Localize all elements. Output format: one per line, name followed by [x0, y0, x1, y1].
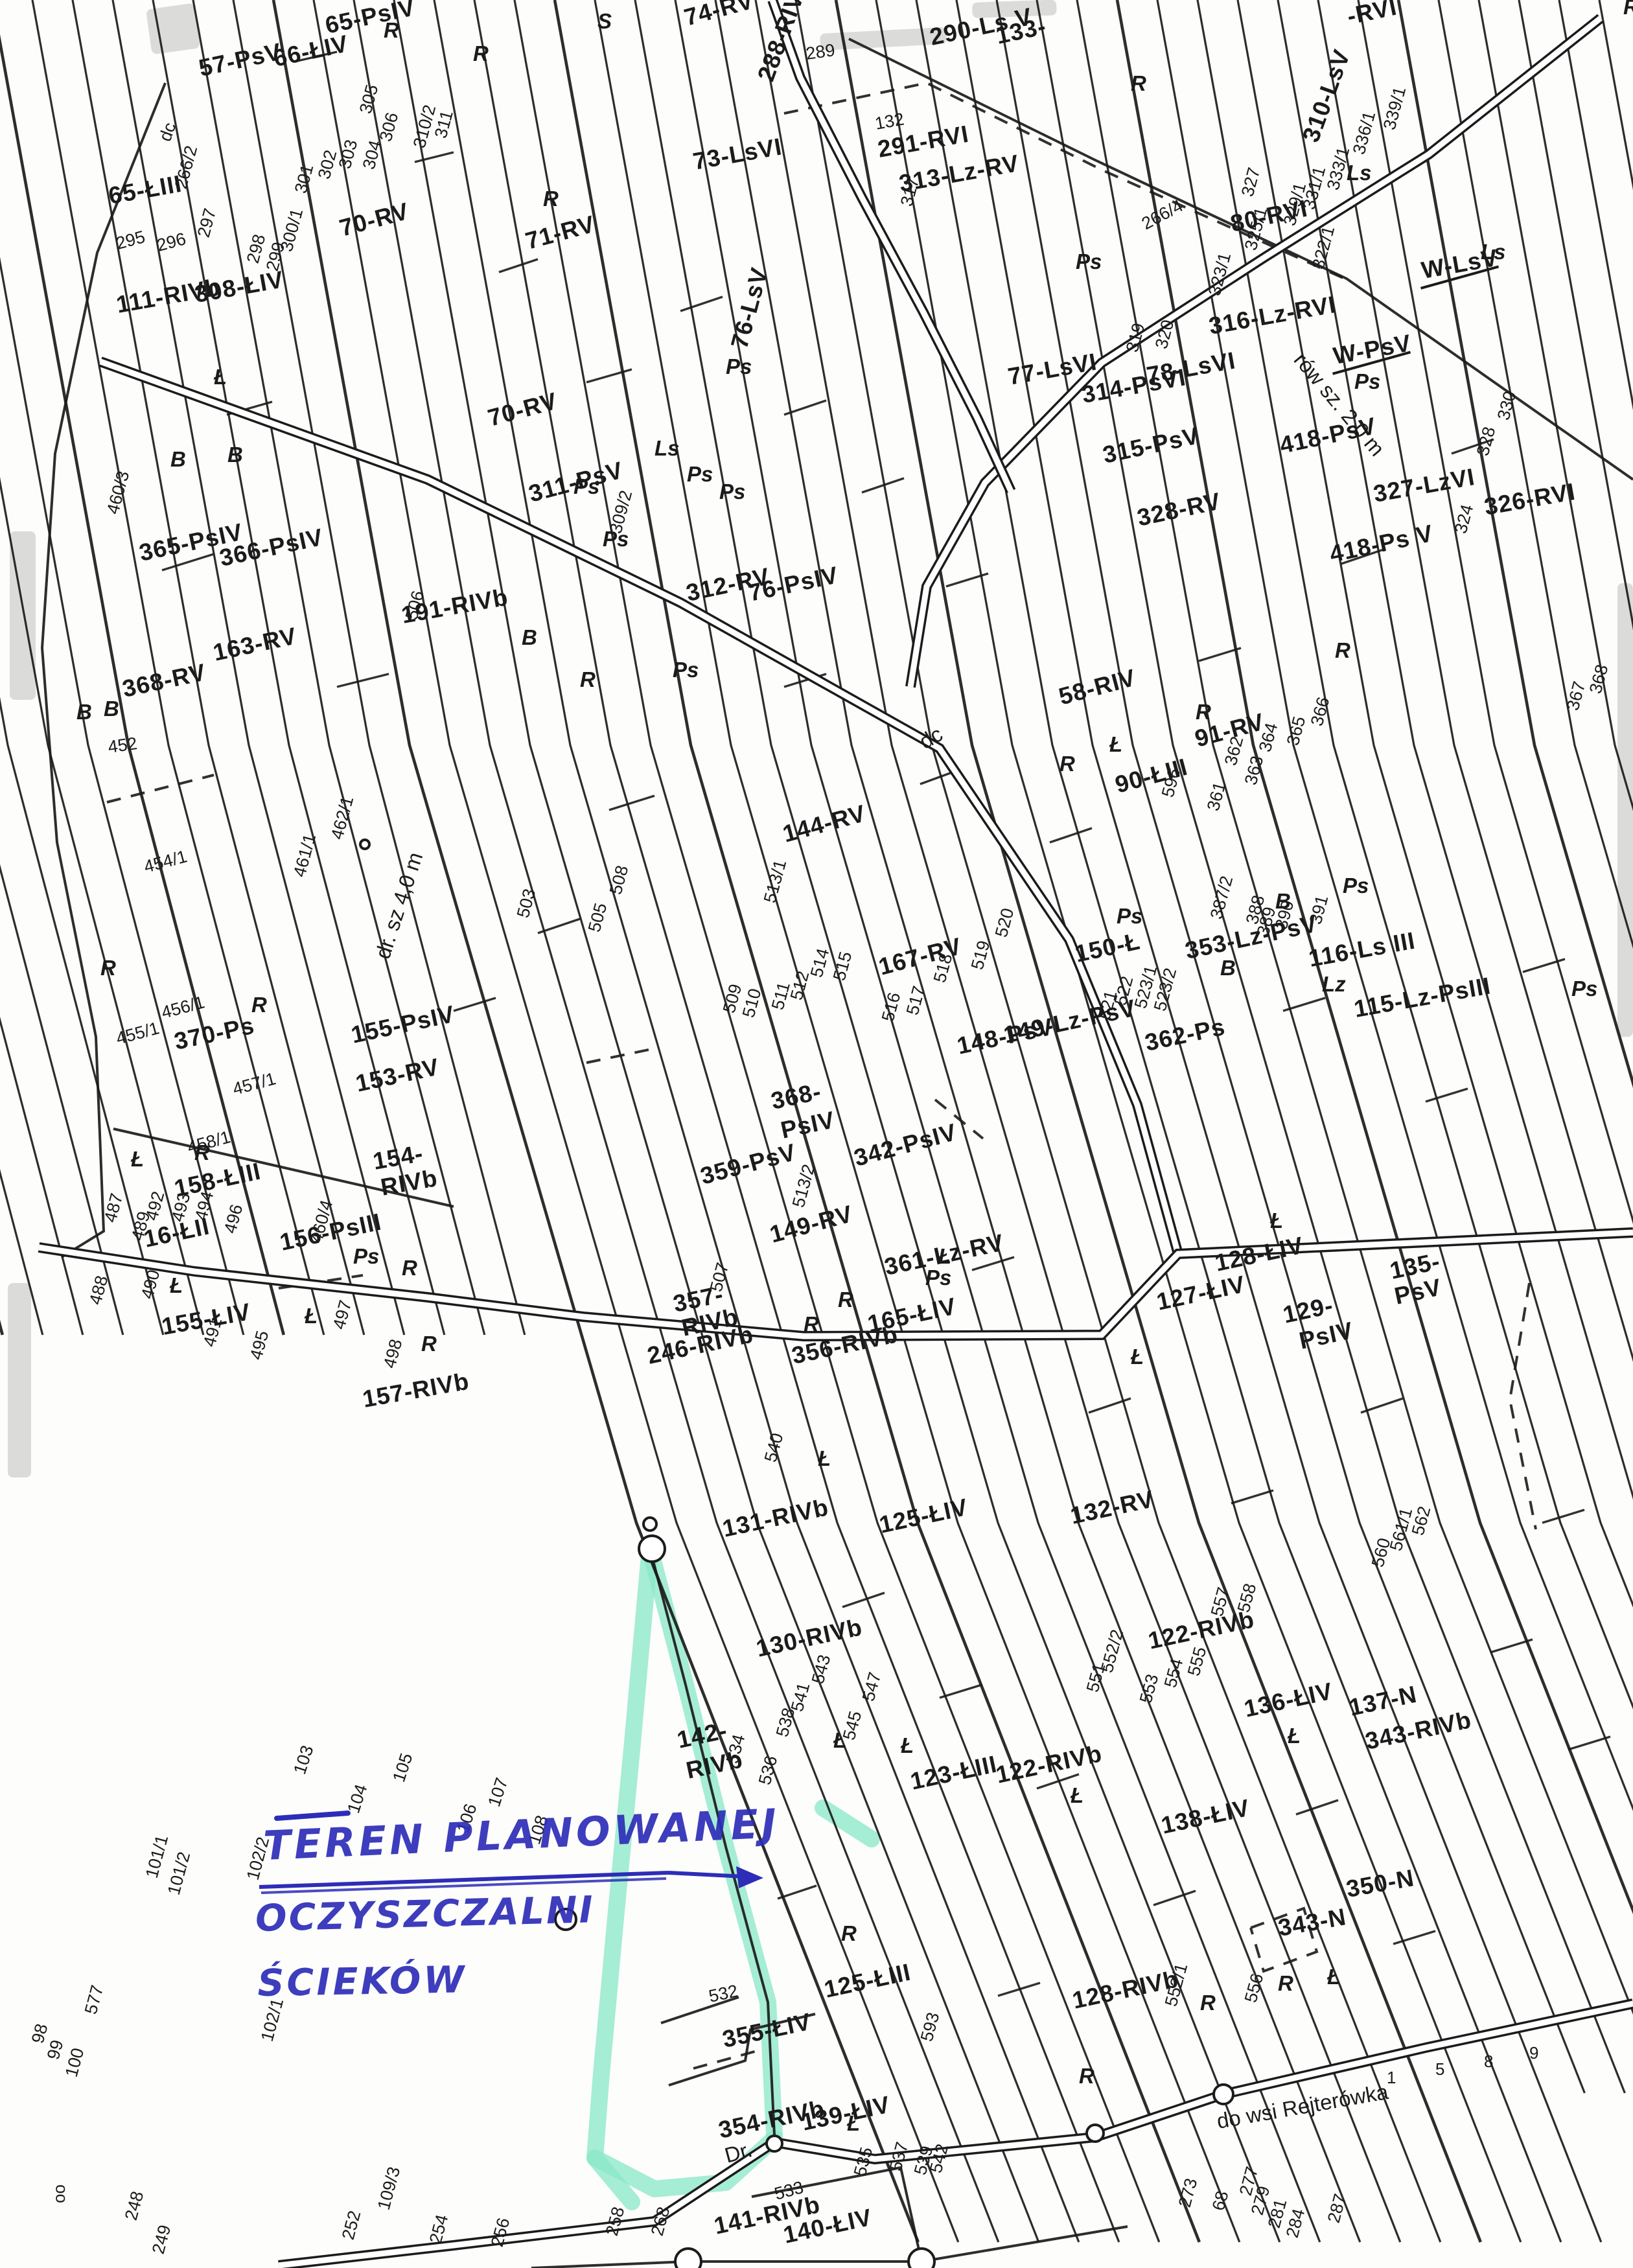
- land-use-letter: B: [76, 700, 92, 724]
- parcel-number: 540: [761, 1431, 787, 1464]
- land-use-letter: R: [421, 1332, 437, 1356]
- parcel-number: 324: [1451, 502, 1477, 535]
- parcel-number: 336/1: [1349, 110, 1379, 157]
- land-use-letter: Ł: [169, 1273, 183, 1297]
- parcel-number: 296: [155, 229, 188, 255]
- land-use-letter: B: [1220, 956, 1236, 980]
- land-use-letter: B: [104, 697, 119, 721]
- land-use-letter: Ł: [213, 365, 227, 389]
- soil-class-label: 128-ŁIV: [1212, 1232, 1306, 1277]
- land-use-letter: R: [838, 1288, 853, 1312]
- land-use-letter: B: [522, 625, 537, 649]
- land-use-letter: Lz: [1322, 972, 1346, 996]
- land-use-letter: B: [227, 443, 243, 467]
- parcel-number: 101/1: [142, 1833, 172, 1880]
- parcel-number: 513/1: [760, 858, 790, 905]
- survey-point: [639, 1536, 665, 1562]
- parcel-number: 490: [137, 1267, 164, 1301]
- parcel-number: 520: [991, 906, 1018, 939]
- soil-class-label: 57-PsV: [196, 38, 284, 82]
- parcel-number: 256: [487, 2216, 514, 2249]
- parcel-number: 248: [121, 2189, 148, 2222]
- soil-class-label: 288-RIVb: [752, 0, 814, 85]
- parcel-number: 457/1: [231, 1069, 278, 1098]
- soil-class-label: 122-RIVb: [1146, 1606, 1257, 1654]
- parcel-number: 552/2: [1097, 1628, 1127, 1675]
- land-use-letter: B: [170, 447, 186, 471]
- land-use-letter: R: [804, 1312, 819, 1336]
- parcel-number: 593: [917, 2010, 944, 2043]
- parcel-number: 101/2: [164, 1850, 194, 1897]
- soil-class-label: 153-RV: [353, 1054, 441, 1097]
- survey-point: [643, 1518, 656, 1531]
- parcel-number: 365: [1283, 714, 1310, 747]
- parcel-number: 266/4: [1139, 196, 1187, 233]
- parcel-number: 258: [602, 2204, 629, 2238]
- land-use-letter: Ps: [925, 1266, 951, 1290]
- soil-class-label: 343-N: [1276, 1903, 1348, 1941]
- parcel-number: 266/2: [171, 144, 201, 191]
- survey-point: [1214, 2085, 1233, 2104]
- soil-class-label: 163-RV: [211, 623, 299, 666]
- parcel-number: 105: [389, 1751, 416, 1785]
- parcel-number: 107: [484, 1776, 511, 1809]
- soil-class-label: 370-Ps: [172, 1012, 257, 1055]
- parcel-number: 254: [426, 2212, 452, 2245]
- land-use-letter: R: [194, 1140, 210, 1164]
- land-use-letter: Ł: [1287, 1724, 1301, 1748]
- edge-number: 1: [1387, 2068, 1396, 2087]
- land-use-letter: R: [1196, 700, 1211, 724]
- land-use-letter: Ps: [1076, 249, 1102, 273]
- parcel-number: 301: [291, 162, 318, 195]
- land-use-letter: R: [251, 993, 267, 1017]
- parcel-number: 249: [148, 2223, 175, 2256]
- soil-class-label: 316-Lz-RVI: [1207, 291, 1338, 340]
- survey-point: [767, 2136, 782, 2151]
- soil-class-label: 78-LsVI: [1144, 347, 1238, 388]
- parcel-number: 558: [1234, 1581, 1260, 1614]
- soil-class-label: 150-Ł: [1072, 928, 1142, 967]
- parcel-number: 543: [808, 1652, 835, 1685]
- scan-artifacts-layer: [8, 0, 1633, 1477]
- survey-point: [360, 840, 369, 849]
- soil-class-label: 142-: [675, 1717, 730, 1753]
- soil-class-label: 73-LsVI: [691, 133, 784, 174]
- parcel-number: 488: [86, 1273, 112, 1306]
- land-use-letter: S: [597, 9, 612, 33]
- land-use-letter: R: [580, 667, 596, 691]
- parcel-number: 305: [356, 82, 382, 115]
- land-use-letter: Ps: [726, 354, 752, 378]
- parcel-number: 319: [1122, 321, 1149, 354]
- parcel-number: 306: [376, 110, 402, 143]
- road-north-east-road: [910, 18, 1601, 687]
- soil-class-label: 58-RIV: [1056, 664, 1139, 710]
- parcel-number: 562: [1408, 1504, 1435, 1537]
- parcel-number: 495: [246, 1328, 273, 1361]
- parcel-number: 268: [647, 2204, 674, 2238]
- parcel-number: 103: [290, 1743, 317, 1777]
- parcel-number: 461/1: [290, 832, 319, 879]
- soil-class-label: 132-RV: [1068, 1486, 1156, 1529]
- parcel-number: 295: [114, 227, 147, 253]
- land-use-letter: R: [1335, 638, 1350, 662]
- parcel-number: 577: [81, 1983, 108, 2016]
- parcel-number: 273: [1175, 2176, 1201, 2209]
- parcel-number: 556: [1241, 1971, 1268, 2004]
- soil-class-label: 136-ŁIV: [1242, 1678, 1335, 1722]
- parcel-number: 508: [606, 863, 632, 896]
- parcel-number: 515: [829, 949, 856, 982]
- land-use-letter: R: [473, 41, 489, 65]
- soil-class-label: PsIV: [778, 1106, 837, 1144]
- land-use-letter: R: [1623, 0, 1633, 19]
- soil-class-label: 308-ŁIV: [192, 266, 286, 307]
- parcel-number: 516: [878, 990, 905, 1023]
- land-use-letter: Ps: [1343, 874, 1369, 897]
- land-use-letter: R: [1060, 752, 1075, 776]
- handwritten-annotation-line3: ŚCIEKÓW: [257, 1958, 467, 2005]
- land-use-letter: Ps: [1354, 369, 1380, 393]
- parcel-number: 367: [1563, 679, 1590, 712]
- parcel-number: 503: [513, 886, 540, 920]
- parcel-number: 513/2: [789, 1163, 818, 1210]
- land-use-letter: Ł: [900, 1733, 914, 1757]
- land-use-letter: Ps: [1571, 977, 1597, 1001]
- parcel-number: 532: [707, 1981, 739, 2006]
- soil-class-label: 116-Ls III: [1306, 927, 1417, 972]
- land-use-letter: Ł: [846, 2111, 860, 2135]
- parcel-number: 387/2: [1207, 874, 1236, 921]
- annotation-arrowhead: [736, 1866, 763, 1888]
- parcel-number: 304: [359, 138, 386, 171]
- parcel-number: 368: [1586, 662, 1612, 695]
- land-use-letter: Ł: [304, 1304, 318, 1328]
- land-use-letter: R: [100, 956, 116, 980]
- soil-class-label: 70-RV: [336, 198, 411, 242]
- soil-class-label: 122-RIVb: [993, 1740, 1104, 1788]
- parcel-number: 492: [142, 1189, 168, 1222]
- parcel-number: 327: [1238, 165, 1264, 198]
- parcel-number: 460/3: [103, 469, 133, 516]
- parcel-number: 330: [1494, 389, 1520, 422]
- parcel-number: 391: [1306, 893, 1332, 926]
- survey-point: [1087, 2125, 1104, 2142]
- handwritten-annotation-line2: OCZYSZCZALNI: [255, 1888, 595, 1940]
- parcel-number: 519: [967, 938, 994, 971]
- annotation-tick: [277, 1813, 348, 1818]
- land-use-letter: Ps: [573, 474, 599, 498]
- parcel-number: 99: [43, 2038, 67, 2062]
- soil-class-label: 157-RIVb: [360, 1368, 471, 1413]
- parcel-number: 542: [926, 2142, 953, 2175]
- land-use-letter: Ł: [1326, 1965, 1340, 1989]
- land-use-letter: Ls: [654, 436, 680, 460]
- soil-class-label: 350-N: [1344, 1864, 1416, 1903]
- parcel-number: 289: [805, 40, 837, 64]
- soil-class-label: 65-PsIV: [323, 0, 417, 39]
- land-use-letter: R: [1278, 1971, 1293, 1995]
- land-use-letter: Ps: [1117, 904, 1142, 928]
- survey-point: [675, 2249, 701, 2268]
- parcel-number: 100: [62, 2046, 88, 2079]
- parcel-number: 505: [585, 901, 611, 934]
- land-use-letter: Ps: [719, 480, 745, 503]
- soil-class-label: 359-PsV: [697, 1139, 798, 1190]
- parcel-number: 68: [1209, 2189, 1233, 2213]
- land-use-letter: R: [841, 1921, 857, 1945]
- land-use-letter: Ps: [673, 658, 699, 682]
- land-use-letter: R: [384, 18, 399, 42]
- parcel-number: 555: [1184, 1645, 1210, 1678]
- parcel-number: 297: [194, 206, 220, 239]
- soil-class-label: 328-RV: [1135, 488, 1223, 531]
- parcel-number: 541: [787, 1680, 814, 1713]
- soil-class-label: 125-ŁIII: [822, 1959, 913, 2003]
- parcel-number: 517: [903, 984, 929, 1017]
- soil-class-label: 74-RV: [681, 0, 756, 31]
- land-use-letter: Ł: [938, 1244, 951, 1268]
- soil-class-label: 125-ŁIV: [877, 1494, 970, 1538]
- soil-class-label: 123-ŁIII: [908, 1751, 999, 1795]
- land-use-letter: Ł: [817, 1446, 831, 1470]
- edge-number: 9: [1529, 2043, 1538, 2063]
- soil-class-label: 144-RV: [780, 800, 868, 847]
- parcel-number: 497: [329, 1298, 356, 1331]
- parcel-number: 339/1: [1380, 85, 1409, 132]
- edge-number: 5: [1435, 2059, 1444, 2079]
- parcel-number: 361: [1203, 780, 1230, 813]
- land-use-letter: R: [402, 1256, 417, 1280]
- land-use-letter: R: [1079, 2064, 1094, 2088]
- land-use-letter: Ps: [603, 527, 629, 551]
- land-use-letter: Ps: [353, 1244, 379, 1268]
- parcel-number: 454/1: [142, 846, 189, 876]
- parcel-number: 498: [380, 1337, 406, 1370]
- road-label: dr. sz 4,0 m: [370, 850, 427, 962]
- parcel-number: 252: [338, 2208, 365, 2241]
- soil-class-label: 76-LsV: [726, 264, 773, 351]
- parcel-number: 300/1: [277, 207, 307, 254]
- land-use-letter: Ls: [1481, 240, 1506, 264]
- parcel-number: 287: [1324, 2192, 1350, 2225]
- soil-class-label: 155-PsIV: [349, 1001, 457, 1048]
- parcel-number: 109/3: [374, 2165, 404, 2212]
- soil-class-label: 368-: [769, 1078, 824, 1114]
- land-use-letter: Ł: [1269, 1209, 1283, 1232]
- parcel-number: 514: [807, 946, 833, 979]
- soil-class-label: 327-LzVI: [1371, 463, 1477, 507]
- parcel-number: 452: [107, 734, 139, 757]
- soil-class-label: 310-LsV: [1297, 46, 1355, 146]
- land-use-letter: Ls: [1347, 161, 1372, 185]
- edge-number: oo: [49, 2184, 69, 2203]
- soil-class-label: 362-Ps: [1142, 1013, 1227, 1056]
- soil-class-label: 149-RV: [767, 1200, 855, 1247]
- soil-class-label: 342-PsIV: [851, 1118, 959, 1172]
- soil-class-label: 137-N: [1347, 1681, 1419, 1721]
- land-use-letter: Ł: [1109, 732, 1122, 756]
- soil-class-label: 368-RV: [120, 659, 208, 702]
- edge-number: 8: [1484, 2052, 1493, 2071]
- soil-class-label: 115-Lz-PsIII: [1352, 972, 1492, 1022]
- land-use-letter: Ł: [1070, 1783, 1083, 1807]
- land-use-letter: Ł: [1130, 1345, 1144, 1369]
- soil-class-label: 131-RIVb: [720, 1494, 831, 1542]
- land-use-letter: R: [543, 187, 559, 211]
- parcel-number: 487: [100, 1191, 127, 1224]
- soil-class-label: 326-RVI: [1482, 478, 1577, 520]
- land-use-letter: Ps: [687, 462, 713, 486]
- land-use-letter: Ł: [130, 1147, 144, 1171]
- land-use-letter: R: [1200, 1991, 1216, 2015]
- soil-class-label: -RVI: [1345, 0, 1399, 30]
- parcel-number: 496: [220, 1202, 247, 1235]
- soil-class-label: 138-ŁIV: [1159, 1794, 1252, 1839]
- parcel-number: 537: [886, 2140, 912, 2173]
- land-use-letter: Ł: [833, 1728, 846, 1752]
- soil-class-label: 70-RV: [485, 388, 560, 432]
- land-use-letter: R: [1131, 71, 1146, 95]
- scanned-cadastral-map-sheet: 57-PsV66-ŁIV65-PsIV65-ŁIII111-RIVb308-ŁI…: [0, 0, 1633, 2268]
- map-canvas: 57-PsV66-ŁIV65-PsIV65-ŁIII111-RIVb308-ŁI…: [0, 0, 1633, 2268]
- parcel-number: 547: [859, 1670, 885, 1703]
- land-use-letter: B: [1275, 889, 1291, 913]
- survey-point: [909, 2249, 934, 2268]
- soil-class-label: 65-ŁIII: [106, 170, 183, 209]
